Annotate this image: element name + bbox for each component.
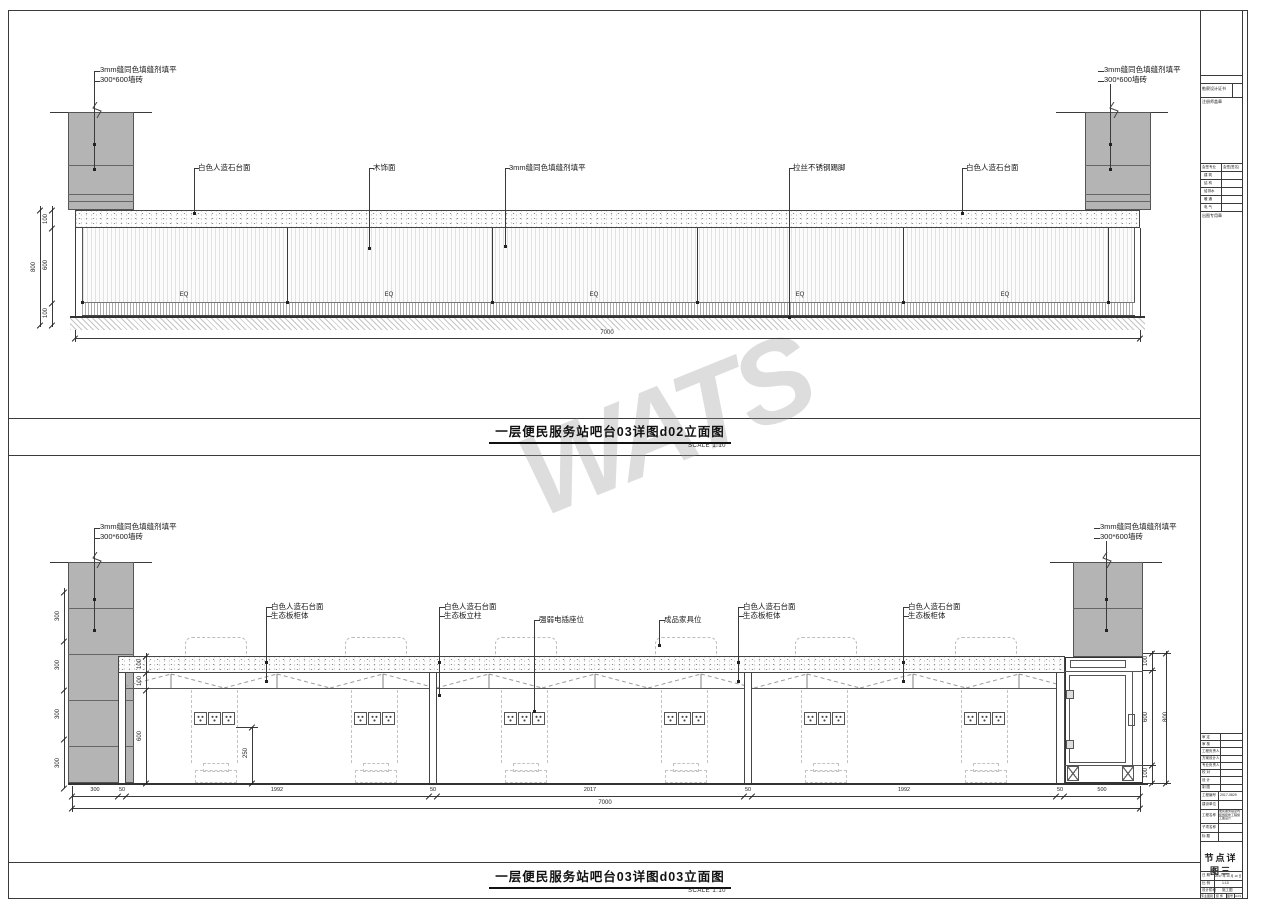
dim-ext [236,727,258,728]
leader-dot [1105,598,1108,601]
date-label: 日 期 [1202,873,1210,877]
leader-line [266,607,267,683]
annotation-label: 3mm缝同色填缝剂填平 [509,164,586,173]
leader-line [94,71,95,170]
skirting [82,303,1135,316]
panel-divider [492,228,493,303]
socket-box [964,712,977,725]
leader-line [789,168,790,318]
project-no-label: 工程编号 [1202,793,1216,797]
truss-band [118,673,1065,689]
date-value: 2017 年 10 月 19 日 [1215,874,1242,878]
eq-label: EQ [790,292,810,298]
leader-dot [533,710,536,713]
annotation-label: 白色人造石台面 [198,164,251,173]
leader-line [1098,71,1104,72]
sig-row: 结 构 [1204,181,1212,185]
dim-label: 7000 [577,330,637,336]
leader-line [1110,84,1111,170]
socket-box [504,712,517,725]
table-outline [1007,690,1008,763]
titleblock-line [1200,75,1242,76]
sig-row: 给排水 [1204,189,1215,193]
titleblock-cert-label: 勘察设计证书 [1202,87,1226,92]
dim-label: 300 [55,753,61,773]
leader-line [505,168,506,247]
pillar-joint [68,194,134,195]
annotation-label: 3mm缝同色填缝剂填平 [100,523,177,532]
chair-outline [795,637,857,657]
titleblock-line [1200,800,1242,801]
pillar-joint [68,608,134,609]
titleblock-line [1200,841,1242,842]
socket-box [804,712,817,725]
socket-box [208,712,221,725]
scale-label: SCALE 1:10 [688,888,726,894]
pillar-joint [68,201,134,202]
leader-dot [1109,168,1112,171]
table-outline [547,690,548,763]
eq-label: EQ [995,292,1015,298]
dim-tick [61,785,67,791]
dim-label: 7000 [575,800,635,806]
leader-line [1094,528,1100,529]
personnel-row: 校 对 [1202,770,1210,774]
personnel-row: 设 计 [1202,778,1210,782]
post [744,673,752,783]
annotation-label: 生态板柜体 [271,612,309,621]
annotation-label: 3mm缝同色填缝剂填平 [1100,523,1177,532]
table-outline [661,690,662,763]
sheet-no-value: d-03 [1235,894,1241,898]
leader-dot [961,212,964,215]
table-pedestal [355,770,397,783]
table-outline [847,690,848,763]
socket-box [818,712,831,725]
scale-row-label: 比 例 [1202,881,1210,885]
dim-label: 100 [43,303,49,323]
table-outline [707,690,708,763]
socket-box [664,712,677,725]
titleblock-line [1232,83,1233,97]
dim-line [72,808,1140,809]
chair-outline [345,637,407,657]
titleblock-right-edge [1242,10,1243,899]
sig-header: 会签专业 [1202,165,1216,169]
client-label: 建设单位 [1202,802,1216,806]
table-pedestal [665,770,707,783]
leader-dot [368,247,371,250]
dim-label: 50 [1054,788,1066,794]
drawing-title: 一层便民服务站吧台03详图d03立面图 [420,866,800,889]
leader-line [369,168,370,249]
socket-box [518,712,531,725]
eq-label: EQ [174,292,194,298]
dim-label: 800 [31,257,37,277]
leader-line [903,607,904,683]
dim-label: 500 [1092,788,1112,794]
leader-line [962,168,963,214]
dim-label: 100 [43,209,49,229]
dim-label: 50 [427,788,439,794]
dim-label: 250 [243,743,249,763]
eq-label: EQ [584,292,604,298]
titleblock-line [1220,733,1221,791]
dim-label: 50 [742,788,754,794]
leader-line [94,528,95,632]
annotation-label: 生态板立柱 [444,612,482,621]
dim-label: 1992 [892,788,916,794]
leader-line [738,607,739,683]
titleblock-line [1200,211,1242,212]
sig-row: 建 筑 [1204,173,1212,177]
leader-line [439,607,440,696]
socket-box [222,712,235,725]
dim-label: 600 [1143,707,1149,727]
leader-line [1094,538,1100,539]
dim-label: 300 [55,655,61,675]
leader-dot [93,143,96,146]
socket-box [992,712,1005,725]
socket-box [678,712,691,725]
stage-value: 施工图 [1222,888,1233,892]
drawing-sheet: WATS 3mm缝同色填缝剂填平 300*600墙砖 3mm缝同色填缝剂填平 3… [0,0,1280,905]
dim-label: 100 [1143,763,1149,783]
drawing-title: 一层便民服务站吧台03详图d02立面图 [420,421,800,444]
titleblock-stamp-note: 出图专用章 [1202,214,1222,219]
annotation-label: 强弱电插座位 [539,616,584,625]
titleblock-line [1221,163,1222,211]
annotation-label: 3mm缝同色填缝剂填平 [1104,66,1181,75]
socket-box [368,712,381,725]
socket-box [692,712,705,725]
cabinet-latch [1128,714,1135,726]
dim-line [75,338,1140,339]
dim-label: 50 [116,788,128,794]
break-mark-icon [1098,552,1116,568]
dim-tick [37,322,43,328]
panel-divider [903,228,904,303]
chair-outline [955,637,1017,657]
leader-line [1106,541,1107,632]
frame-top [8,10,1248,11]
sig-row: 暖 通 [1204,197,1212,201]
socket-box [532,712,545,725]
scale-row-value: 1:10 [1222,881,1229,885]
socket-box [354,712,367,725]
leader-dot [788,316,791,319]
table-pedestal [965,770,1007,783]
leader-dot [438,694,441,697]
leader-dot [658,644,661,647]
band-line-bottom [8,862,1200,863]
titleblock-line [1200,83,1242,84]
dim-label: 300 [55,606,61,626]
leader-dot [737,680,740,683]
pillar-joint [1073,608,1143,609]
titleblock-line [1200,823,1242,824]
personnel-row: 方案设计人 [1202,756,1220,760]
leader-dot [737,661,740,664]
leader-dot [93,168,96,171]
sig-row: 电 气 [1204,205,1212,209]
table-outline [961,690,962,763]
titleblock-divider [1200,10,1201,899]
dim-line [52,206,53,327]
pillar-joint [1085,201,1151,202]
personnel-row: 工程负责人 [1202,749,1220,753]
floor-hatch [70,316,1145,330]
dim-label: 300 [55,704,61,724]
frame-right [1247,10,1248,899]
dim-label: 300 [85,788,105,794]
pillar [1073,562,1143,657]
dim-line [72,796,1140,797]
leader-dot [265,661,268,664]
leader-dot [902,661,905,664]
sheet-title-label: 标 题 [1202,834,1210,838]
band-line-top [8,418,1200,419]
table-outline [501,690,502,763]
end-panel-line [1140,228,1141,316]
pillar [1085,112,1151,210]
chair-outline [495,637,557,657]
dim-label: 2017 [578,788,602,794]
cabinet-drawer [1070,660,1126,668]
post [429,673,437,783]
post [118,673,126,783]
frame-bottom [8,898,1248,899]
panel-divider [697,228,698,303]
titleblock-line [1214,893,1215,898]
dim-line [252,727,253,783]
chair-outline [655,637,717,657]
hinge [1066,740,1074,749]
hinge [1066,690,1074,699]
countertop [118,656,1065,673]
leader-dot [504,245,507,248]
table-pedestal [505,770,547,783]
pillar-joint [68,654,134,655]
annotation-label: 木饰面 [373,164,396,173]
leader-dot [902,680,905,683]
annotation-label: 300*600墙砖 [100,76,143,85]
break-mark-icon [1105,102,1123,118]
eq-label: EQ [379,292,399,298]
dim-label: 1992 [265,788,289,794]
panel-divider [287,228,288,303]
pillar [68,112,134,210]
titleblock-line [1200,791,1242,792]
annotation-label: 拉丝不锈钢踢脚 [793,164,846,173]
leader-dot [1105,629,1108,632]
socket-box [832,712,845,725]
annotation-label: 成品家具位 [664,616,702,625]
table-outline [191,690,192,763]
leader-line [534,620,535,712]
stage-label: 设计阶段 [1202,888,1216,892]
leader-dot [193,212,196,215]
chair-outline [185,637,247,657]
category-label: 专业图别 [1201,894,1213,898]
project-no-value: 2017-0829 [1220,793,1237,797]
project-name-label: 工程名称 [1202,813,1216,817]
table-outline [351,690,352,763]
titleblock-line [1200,832,1242,833]
project-name-value: 便民服务站室内装饰装修工程施工图设计 [1219,810,1241,821]
titleblock-line [1200,871,1242,872]
personnel-row: 审 核 [1202,742,1210,746]
pillar-joint [1085,165,1151,166]
personnel-row: 审 定 [1202,735,1210,739]
socket-box [978,712,991,725]
table-outline [397,690,398,763]
annotation-label: 3mm缝同色填缝剂填平 [100,66,177,75]
table-outline [801,690,802,763]
break-mark-icon [88,552,106,568]
dim-label: 800 [1163,707,1169,727]
dim-label: 100 [1143,651,1149,671]
dim-line [40,206,41,327]
break-mark-icon [88,102,106,118]
sub-name-label: 子项名称 [1202,825,1216,829]
table-pedestal [195,770,237,783]
annotation-label: 300*600墙砖 [100,533,143,542]
wood-panel [82,228,1135,303]
band-line-mid [8,455,1200,456]
titleblock-seal-note: 注册师盖章 [1202,100,1222,105]
leader-line [659,620,660,646]
floor-line [68,783,1148,785]
dim-label: 100 [137,671,143,691]
socket-box [382,712,395,725]
countertop [75,210,1140,228]
table-pedestal [805,770,847,783]
socket-box [194,712,207,725]
titleblock-line [1200,97,1242,98]
leader-line [194,168,195,214]
annotation-label: 生态板柜体 [908,612,946,621]
cabinet-leg [1067,766,1079,781]
leader-dot [1109,143,1112,146]
leader-dot [93,598,96,601]
panel-divider [1108,228,1109,303]
dim-label: 600 [43,255,49,275]
leader-dot [265,680,268,683]
category-value: 装 饰 [1216,894,1223,898]
dim-label: 600 [137,726,143,746]
pillar-joint [68,165,134,166]
cabinet-leg [1122,766,1134,781]
post [1056,673,1065,783]
sig-header: 会签(签名) [1223,165,1239,169]
personnel-row: 制 图 [1202,785,1210,789]
pillar-joint [1085,194,1151,195]
leader-line [1098,81,1104,82]
annotation-label: 白色人造石台面 [966,164,1019,173]
leader-dot [93,629,96,632]
dim-tick [49,322,55,328]
end-panel-line [75,228,76,316]
personnel-row: 专业负责人 [1202,763,1220,767]
annotation-label: 生态板柜体 [743,612,781,621]
cabinet-door [1069,675,1126,763]
leader-dot [438,661,441,664]
sheet-no-label: 图号 [1227,894,1233,898]
scale-label: SCALE 1:10 [688,443,726,449]
